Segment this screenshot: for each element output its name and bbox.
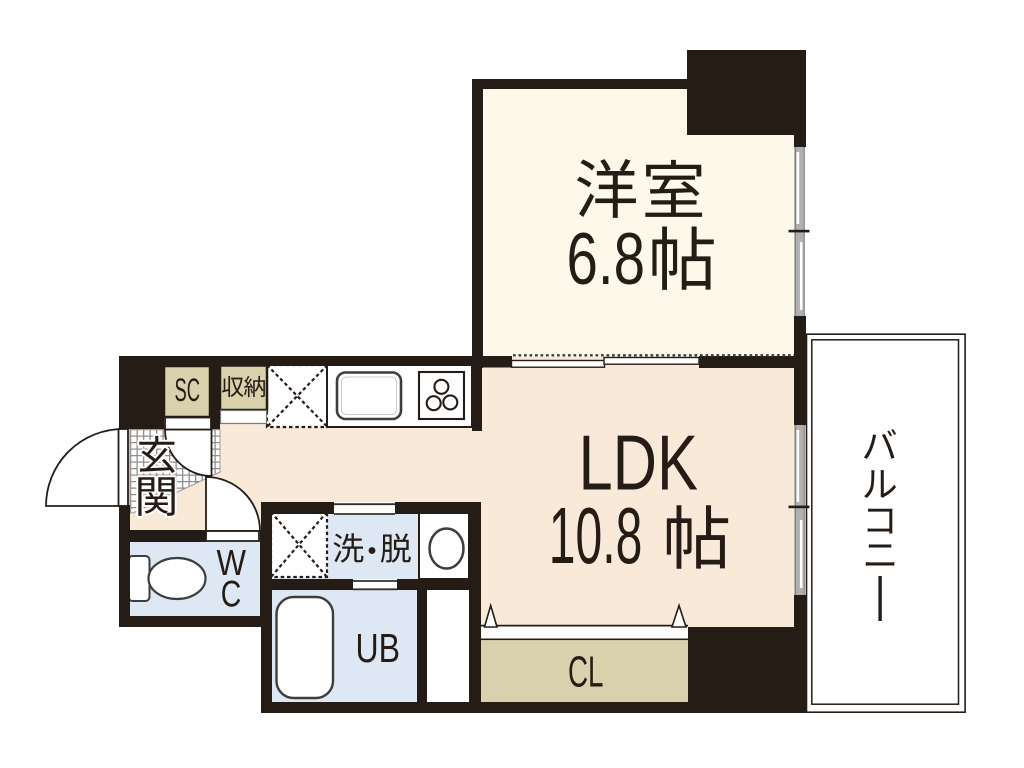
svg-text:C: C [221, 574, 242, 615]
svg-text:CL: CL [568, 649, 604, 697]
svg-text:10.8: 10.8 [549, 491, 643, 580]
svg-text:UB: UB [356, 625, 401, 671]
svg-text:SC: SC [175, 372, 201, 408]
svg-text:6.8: 6.8 [567, 219, 646, 300]
